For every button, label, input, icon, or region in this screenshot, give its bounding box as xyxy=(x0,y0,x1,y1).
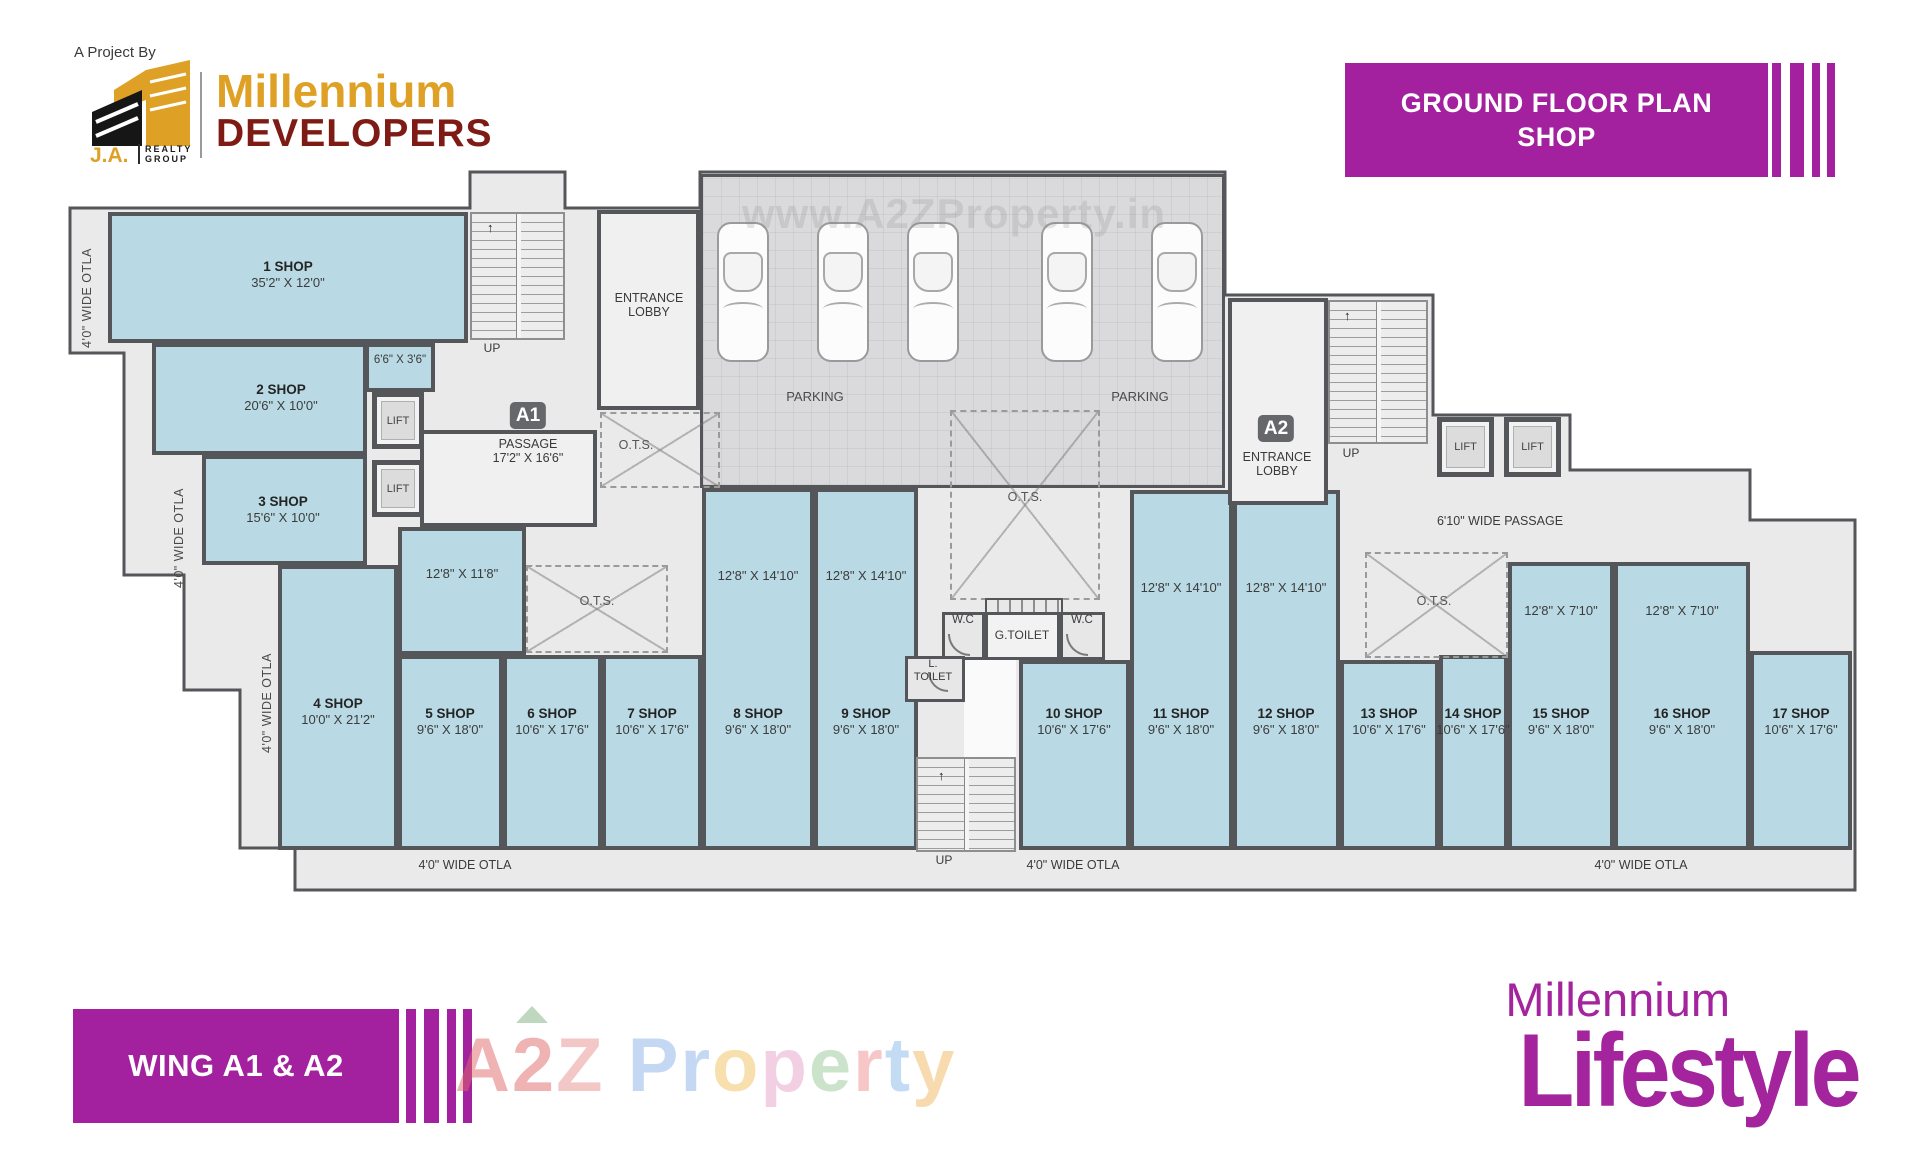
shop-10-label: 10 SHOP xyxy=(1037,705,1110,722)
otla-label-vertical: 4'0" WIDE OTLA xyxy=(80,243,94,353)
shop-13-label: 13 SHOP xyxy=(1352,705,1425,722)
watermark-letter: r xyxy=(680,1023,712,1108)
passage-a1-label: PASSAGE xyxy=(493,437,564,451)
shop-7-room xyxy=(602,655,702,850)
ots-shaft xyxy=(526,565,668,653)
ots-label: O.T.S. xyxy=(580,594,615,608)
g-toilet-label: G.TOILET xyxy=(995,628,1049,642)
shop-12-label: 12 SHOP xyxy=(1253,705,1319,722)
up-label: UP xyxy=(936,853,953,867)
shop-10-room xyxy=(1019,660,1130,850)
wing-a2-badge: A2 xyxy=(1258,415,1294,442)
shop-8-label: 8 SHOP xyxy=(725,705,791,722)
watermark-letter: e xyxy=(809,1023,853,1108)
shop-5-label: 5 SHOP xyxy=(417,705,483,722)
watermark-letter: 2 xyxy=(512,1023,556,1108)
corridor xyxy=(964,660,1016,757)
watermark-letter: Z xyxy=(556,1023,604,1108)
shop-11-room xyxy=(1130,490,1233,850)
wing-accent-bar xyxy=(406,1009,416,1123)
shop-5-room xyxy=(398,655,503,850)
watermark-letter: A xyxy=(455,1023,512,1108)
otla-label-vertical: 4'0" WIDE OTLA xyxy=(260,648,274,758)
developer-name-bottom: DEVELOPERS xyxy=(216,112,493,156)
plan-title-banner: GROUND FLOOR PLAN SHOP xyxy=(1345,63,1768,177)
shop-12-upper-size: 12'8" X 14'10" xyxy=(1246,580,1327,595)
staircase-central-icon xyxy=(916,757,1016,852)
shop-7-label: 7 SHOP xyxy=(615,705,688,722)
watermark-letter xyxy=(605,1023,628,1108)
watermark-letter: P xyxy=(628,1023,681,1108)
car-icon xyxy=(1151,222,1203,362)
l-toilet-label: L. xyxy=(914,658,952,671)
shop-6-room xyxy=(503,655,602,850)
entrance-lobby-a1-label: ENTRANCE xyxy=(615,291,684,305)
staircase-a2-icon xyxy=(1328,300,1428,444)
car-icon xyxy=(817,222,869,362)
wing-a1-badge: A1 xyxy=(510,402,546,429)
watermark-letter: r xyxy=(853,1023,885,1108)
shop-3-label: 3 SHOP xyxy=(246,493,319,510)
shop-6-label: 6 SHOP xyxy=(515,705,588,722)
stairs-up-arrow-icon: ↑ xyxy=(1344,308,1351,323)
shop-9-label: 9 SHOP xyxy=(833,705,899,722)
project-by-label: A Project By xyxy=(74,44,156,61)
shop-13-room xyxy=(1340,660,1439,850)
watermark-url: www.A2ZProperty.in xyxy=(742,190,1166,238)
shop-11-label: 11 SHOP xyxy=(1148,705,1214,722)
lift-label: LIFT xyxy=(387,483,410,495)
shop-17-label: 17 SHOP xyxy=(1764,705,1837,722)
wc-label: W.C xyxy=(1071,614,1093,626)
shop-8-upper-size: 12'8" X 14'10" xyxy=(718,568,799,583)
shop-2-annex-label: 6'6" X 3'6" xyxy=(374,354,426,366)
lift-room: LIFT xyxy=(1437,417,1494,477)
shop-4-label: 4 SHOP xyxy=(301,695,374,712)
logo-divider xyxy=(200,72,202,158)
project-brand-line2: Lifestyle xyxy=(1518,1012,1858,1131)
shop-16-label: 16 SHOP xyxy=(1649,705,1715,722)
staircase-a1-icon xyxy=(470,212,565,340)
car-icon xyxy=(717,222,769,362)
shop-2-label: 2 SHOP xyxy=(244,381,317,398)
watermark-house-icon xyxy=(516,1006,548,1023)
plan-title-line1: GROUND FLOOR PLAN xyxy=(1401,86,1713,120)
stairs-up-arrow-icon: ↑ xyxy=(938,768,945,783)
wc-label: W.C xyxy=(952,614,974,626)
shop-16-upper-size: 12'8" X 7'10" xyxy=(1645,603,1718,618)
wing-accent-bar xyxy=(424,1009,439,1123)
wing-title: WING A1 & A2 xyxy=(128,1048,344,1084)
shop-15-upper-size: 12'8" X 7'10" xyxy=(1524,603,1597,618)
plan-title-line2: SHOP xyxy=(1517,120,1596,154)
lift-label: LIFT xyxy=(387,415,410,427)
banner-accent-bar xyxy=(1790,63,1804,177)
entrance-lobby-a2-label: ENTRANCE xyxy=(1243,450,1312,464)
wide-passage-label: 6'10" WIDE PASSAGE xyxy=(1437,514,1563,528)
up-label: UP xyxy=(1343,446,1360,460)
shop-5-upper-size: 12'8" X 11'8" xyxy=(426,566,499,581)
shop-2-annex-room xyxy=(365,343,435,392)
ots-shaft xyxy=(950,410,1100,600)
car-icon xyxy=(1041,222,1093,362)
watermark-letter: y xyxy=(912,1023,956,1108)
lift-room: LIFT xyxy=(372,460,424,517)
shop-14-label: 14 SHOP xyxy=(1436,705,1509,722)
shop-5-upper-room xyxy=(398,527,526,655)
wing-title-box: WING A1 & A2 xyxy=(73,1009,399,1123)
shop-8-room xyxy=(702,488,814,850)
lift-room: LIFT xyxy=(1504,417,1561,477)
ots-label: O.T.S. xyxy=(619,438,654,452)
stairs-up-arrow-icon: ↑ xyxy=(487,220,494,235)
otla-label: 4'0" WIDE OTLA xyxy=(419,858,512,872)
parking-label: PARKING xyxy=(786,389,844,404)
shop-12-room xyxy=(1233,490,1340,850)
shop-1-label: 1 SHOP xyxy=(251,258,324,275)
shop-15-label: 15 SHOP xyxy=(1528,705,1594,722)
banner-accent-bar xyxy=(1827,63,1835,177)
shop-17-room xyxy=(1750,651,1852,850)
ots-label: O.T.S. xyxy=(1008,490,1043,504)
bottom-watermark: A2Z Property xyxy=(455,1022,956,1109)
lift-label: LIFT xyxy=(1454,441,1477,453)
shop-9-upper-size: 12'8" X 14'10" xyxy=(826,568,907,583)
banner-accent-bar xyxy=(1812,63,1820,177)
lift-room: LIFT xyxy=(372,392,424,449)
lift-label: LIFT xyxy=(1521,441,1544,453)
parking-label: PARKING xyxy=(1111,389,1169,404)
developer-name-top: Millennium xyxy=(216,64,456,118)
banner-accent-bar xyxy=(1772,63,1781,177)
watermark-letter: o xyxy=(712,1023,760,1108)
developer-logo-icon xyxy=(86,60,198,146)
shop-14-room xyxy=(1439,655,1508,850)
watermark-letter: p xyxy=(760,1023,808,1108)
shop-9-room xyxy=(814,488,918,850)
logo-realty-label: REALTY xyxy=(145,144,192,154)
logo-group-label: GROUP xyxy=(145,154,192,164)
otla-label-vertical: 4'0" WIDE OTLA xyxy=(172,482,186,594)
car-icon xyxy=(907,222,959,362)
ots-label: O.T.S. xyxy=(1417,594,1452,608)
floor-plan-page: A Project By J.A. REALTY GROUP Millenniu… xyxy=(0,0,1920,1173)
watermark-letter: t xyxy=(885,1023,912,1108)
otla-label: 4'0" WIDE OTLA xyxy=(1595,858,1688,872)
otla-label: 4'0" WIDE OTLA xyxy=(1027,858,1120,872)
shop-11-upper-size: 12'8" X 14'10" xyxy=(1141,580,1222,595)
up-label: UP xyxy=(484,341,501,355)
logo-initials: J.A. xyxy=(90,144,129,168)
